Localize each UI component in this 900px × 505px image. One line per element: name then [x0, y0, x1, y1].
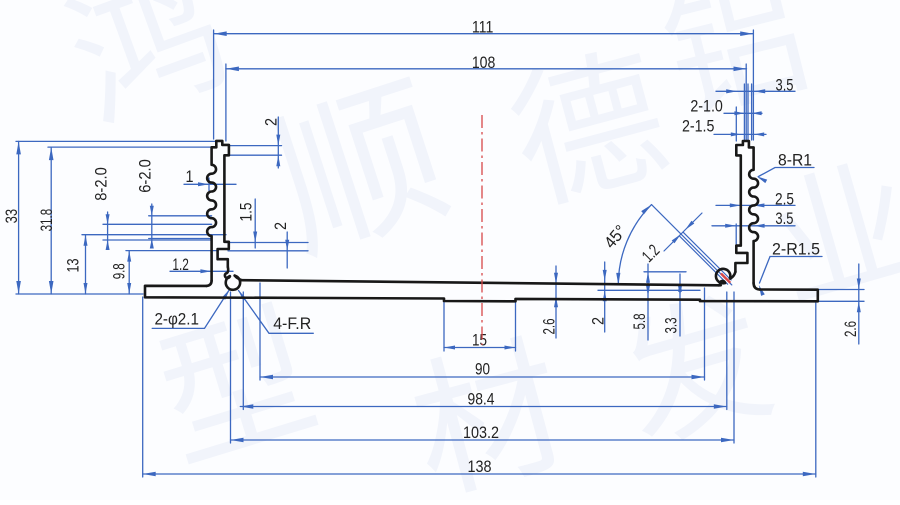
svg-text:90: 90: [475, 360, 490, 379]
svg-text:98.4: 98.4: [468, 390, 495, 409]
svg-text:2: 2: [271, 222, 290, 230]
svg-text:2-1.5: 2-1.5: [682, 117, 715, 136]
svg-text:15: 15: [472, 331, 487, 350]
svg-text:3.5: 3.5: [775, 209, 793, 228]
svg-text:13: 13: [64, 259, 83, 273]
svg-text:5.8: 5.8: [630, 314, 649, 330]
svg-text:3.3: 3.3: [662, 318, 681, 334]
svg-text:2.6: 2.6: [540, 319, 559, 335]
svg-text:138: 138: [468, 457, 492, 476]
svg-text:1.2: 1.2: [172, 255, 189, 274]
svg-text:2: 2: [589, 317, 608, 325]
svg-text:2-R1.5: 2-R1.5: [772, 240, 820, 259]
svg-text:2: 2: [262, 118, 281, 126]
svg-text:111: 111: [472, 18, 494, 37]
svg-text:31.8: 31.8: [37, 209, 56, 232]
svg-text:1.5: 1.5: [237, 203, 256, 222]
svg-text:8-R1: 8-R1: [778, 151, 812, 170]
svg-text:3.5: 3.5: [776, 75, 794, 94]
svg-text:2-φ2.1: 2-φ2.1: [154, 310, 199, 329]
svg-text:6-2.0: 6-2.0: [136, 159, 155, 193]
svg-text:4-F.R: 4-F.R: [273, 314, 311, 333]
svg-text:103.2: 103.2: [463, 423, 499, 442]
svg-text:2.6: 2.6: [841, 321, 860, 337]
svg-text:33: 33: [2, 209, 21, 224]
svg-text:9.8: 9.8: [110, 263, 129, 279]
svg-text:8-2.0: 8-2.0: [91, 167, 110, 201]
svg-text:108: 108: [472, 53, 496, 72]
svg-text:1: 1: [186, 167, 194, 186]
svg-text:2-1.0: 2-1.0: [690, 97, 723, 116]
svg-text:2.5: 2.5: [775, 189, 794, 208]
